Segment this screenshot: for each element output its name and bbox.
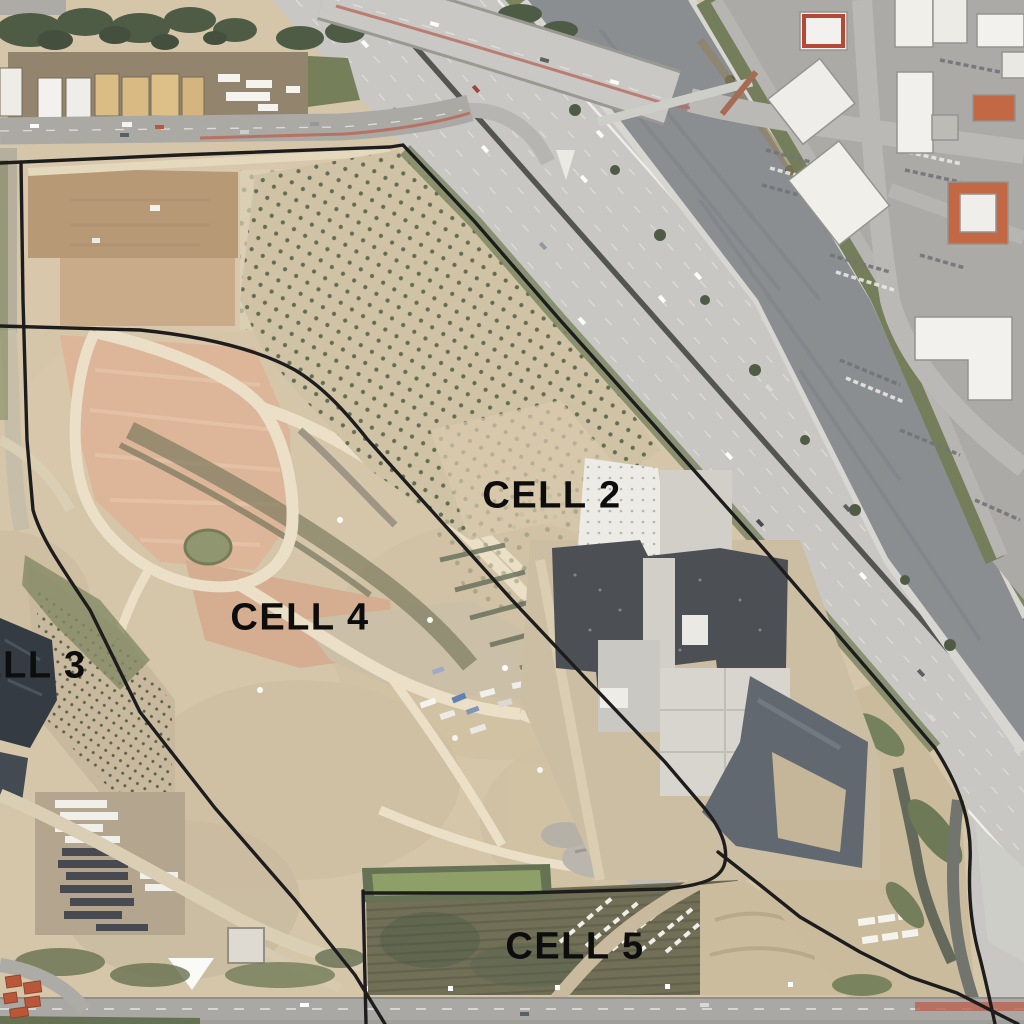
label-cell-3: CELL 3 [0,645,87,688]
label-cell-4: CELL 4 [230,597,369,640]
label-cell-2: CELL 2 [482,475,621,518]
label-cell-5: CELL 5 [505,926,644,969]
aerial-map: CELL 2 CELL 3 CELL 4 CELL 5 [0,0,1024,1024]
